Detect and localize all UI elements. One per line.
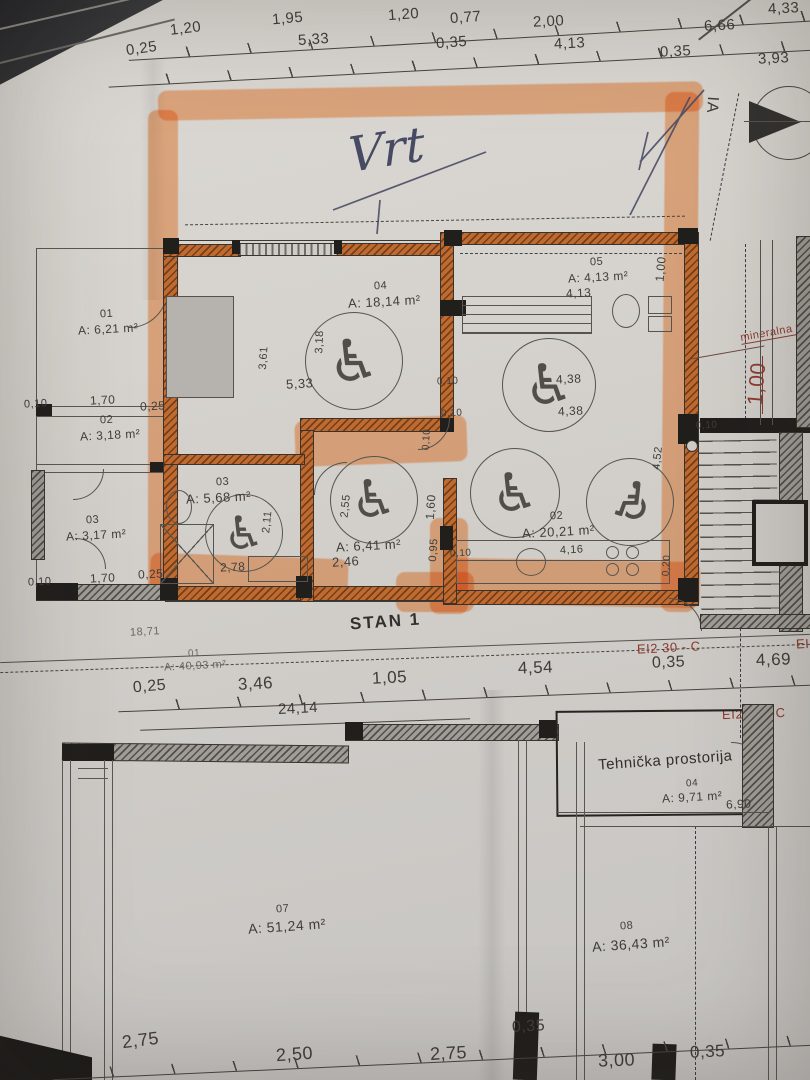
dim-label: 1,20: [387, 5, 419, 24]
dim-label: 2,75: [121, 1028, 160, 1053]
room05-dashed: [460, 253, 682, 254]
section-line: [710, 93, 740, 240]
dim-label: 0,35: [652, 653, 686, 672]
hatched-wall: [796, 236, 810, 428]
dim-label: 3,00: [598, 1049, 636, 1071]
apartment-wall-bottom: [443, 590, 699, 605]
kitchen-sink: [516, 548, 546, 576]
room-area: A: 51,24 m²: [248, 915, 327, 936]
dim-label: 6,90: [726, 796, 752, 811]
dim-label: 3,18: [313, 330, 326, 354]
dim-label: 3,93: [758, 49, 790, 68]
dim-line-red: [762, 356, 763, 414]
room-number: 01: [188, 648, 201, 660]
highlight-stroke-top: [158, 81, 703, 121]
wall-block: [232, 240, 240, 254]
dim-label: 0,20: [660, 554, 672, 576]
room-number: 01: [100, 308, 114, 321]
dim-label: 2,00: [533, 12, 565, 31]
toilet: [612, 294, 640, 328]
inner-wall: [440, 232, 454, 430]
room-number: 07: [276, 903, 290, 916]
hatched-wall: [31, 470, 45, 560]
dim-label: 0,10: [696, 419, 718, 431]
wheelchair-icon: [305, 312, 403, 410]
dim-label: 4,16: [560, 543, 584, 556]
dim-label: 3,46: [238, 673, 274, 695]
handwritten-note: Vrt: [347, 116, 426, 184]
dim-label: 24,14: [278, 699, 319, 718]
dim-label: 0,10: [420, 428, 432, 450]
garage-wall: [62, 760, 71, 1080]
dim-label: 1,20: [169, 18, 202, 39]
dim-label: 4,52: [651, 446, 665, 471]
hatched-wall: [700, 614, 810, 629]
apartment-wall-top: [337, 243, 452, 256]
dim-label: 0,10: [28, 575, 52, 588]
dim-label: 2,50: [275, 1043, 313, 1067]
wall-line: [556, 812, 770, 813]
dim-label: 3,61: [257, 346, 271, 370]
dim-label: 4,33: [768, 0, 800, 18]
dim-label: 5,33: [286, 375, 314, 391]
dim-label: 0,10: [24, 397, 48, 410]
dim-label: 4,13: [554, 34, 586, 53]
dim-label: 0,95: [427, 538, 441, 562]
window-band: [238, 243, 340, 256]
room-number: 04: [374, 280, 388, 293]
wall-block: [163, 238, 179, 254]
dim-label: 1,60: [423, 494, 439, 520]
dim-label: 0,35: [435, 33, 467, 52]
stove-burner: [626, 563, 639, 576]
roof-overhang-dashed: [185, 216, 685, 226]
closet: [462, 296, 592, 334]
wheelchair-icon: [502, 338, 596, 432]
section-marker-axis: [744, 121, 810, 122]
dim-label: 4,54: [518, 657, 554, 678]
room-number: 04: [686, 778, 699, 790]
room-area: A: 40,93 m²: [164, 658, 227, 673]
dim-label: 0,35: [690, 1041, 726, 1063]
dim-label: 1,95: [271, 9, 304, 29]
room-area: A: 36,43 m²: [592, 933, 671, 954]
wall-block: [539, 720, 557, 738]
stove-burner: [606, 546, 619, 559]
paper-crease: [478, 690, 506, 1080]
room-number: 02: [550, 510, 564, 523]
wall-line: [760, 240, 761, 425]
dim-label: 1,70: [90, 392, 116, 407]
stove-burner: [606, 563, 619, 576]
dim-label: 1,00: [653, 256, 669, 282]
wall-block: [345, 722, 363, 740]
dim-label: 0,25: [140, 398, 166, 413]
shaft-box: [752, 500, 808, 566]
dim-label: 0,10: [441, 407, 463, 419]
dim-label: 0,35: [512, 1017, 546, 1037]
section-label: IA: [702, 96, 721, 114]
leader-line: [690, 345, 764, 359]
fire-rating-label: EI2: [796, 635, 810, 651]
wheelchair-icon: [586, 458, 674, 546]
dimension-chain: [118, 675, 810, 713]
room-number: 03: [86, 514, 100, 527]
dim-label: 0,10: [437, 375, 459, 387]
wall-block: [440, 526, 453, 550]
apartment-wall-top: [461, 232, 687, 245]
dim-label: 4,38: [556, 372, 582, 387]
dim-label: 2,75: [429, 1042, 467, 1065]
wall-block: [444, 230, 462, 246]
floor-plan-photo: 1,20 1,95 1,20 0,77 2,00 4,33 6,66 0,25 …: [0, 0, 810, 1080]
bathroom-wall-top: [163, 454, 305, 465]
wall-line: [772, 240, 773, 425]
room-number: 02: [100, 414, 114, 427]
dim-label: 0,25: [132, 677, 167, 698]
room-number: 08: [620, 920, 634, 933]
dim-label: 2,78: [220, 559, 246, 574]
door-hinge: [686, 440, 698, 452]
dim-label: 2,46: [332, 553, 360, 569]
garage-wall: [576, 742, 585, 1080]
dim-label: 0,10: [450, 547, 472, 559]
dim-label: 0,35: [660, 42, 692, 61]
dim-label: 1,05: [372, 667, 408, 689]
wall-block: [334, 240, 342, 254]
garage-step: [78, 768, 108, 779]
unit-label: STAN 1: [349, 610, 421, 635]
garage-wall-top: [345, 724, 559, 741]
dim-label: 5,33: [297, 30, 329, 49]
wall-block: [678, 414, 698, 444]
room-number: 03: [216, 476, 230, 489]
dim-label: 4,69: [756, 649, 792, 670]
dim-label: 0,77: [449, 8, 481, 27]
room-number: 05: [590, 256, 604, 269]
dim-label: 2,55: [339, 494, 353, 519]
wall-block: [678, 578, 698, 602]
wardrobe: [166, 296, 234, 398]
dim-label: 6,66: [704, 16, 736, 35]
wall-block: [678, 228, 698, 244]
dim-label: 0,25: [138, 566, 164, 581]
dim-label: 4,13: [566, 285, 592, 300]
garage-wall: [104, 760, 113, 1080]
dim-label: 18,71: [130, 625, 161, 639]
dim-label: 2,11: [260, 510, 274, 534]
material-dim: 1,00: [744, 362, 772, 407]
wall-block: [62, 744, 114, 761]
stove-burner: [626, 546, 639, 559]
appliance: [648, 296, 672, 314]
dim-label: 1,70: [90, 570, 116, 585]
appliance: [648, 316, 672, 332]
dim-label: 4,38: [558, 404, 584, 419]
